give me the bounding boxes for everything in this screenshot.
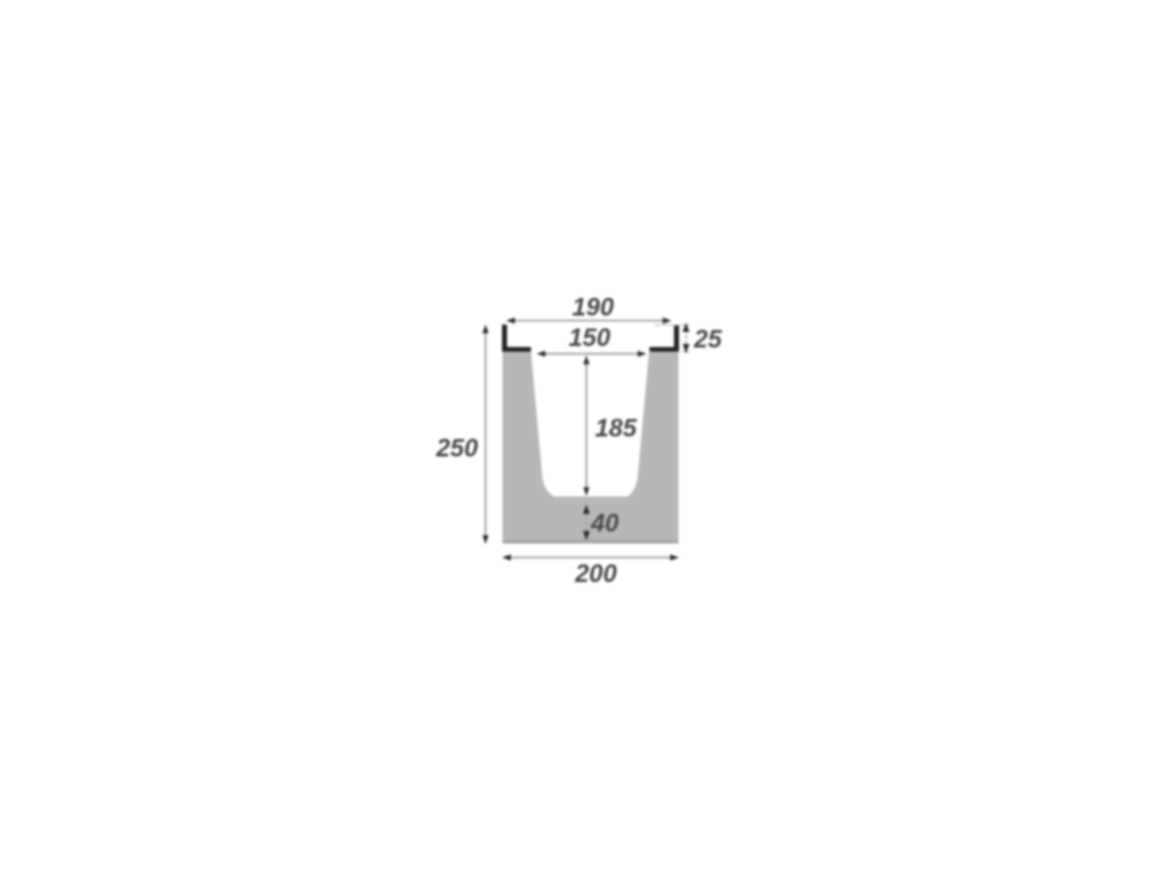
svg-text:185: 185	[595, 415, 638, 443]
svg-text:40: 40	[590, 510, 619, 538]
svg-text:25: 25	[693, 326, 723, 354]
svg-text:250: 250	[435, 435, 478, 463]
svg-text:190: 190	[572, 294, 614, 322]
svg-text:150: 150	[569, 324, 611, 352]
svg-text:200: 200	[574, 560, 617, 588]
